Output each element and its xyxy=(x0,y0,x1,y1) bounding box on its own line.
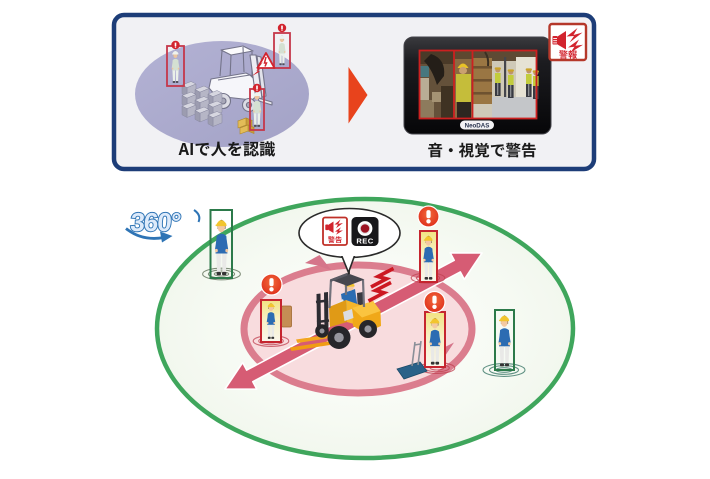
svg-text:REC: REC xyxy=(356,237,373,246)
svg-text:NeoDAS: NeoDAS xyxy=(465,123,490,130)
svg-text:360°: 360° xyxy=(129,207,181,237)
